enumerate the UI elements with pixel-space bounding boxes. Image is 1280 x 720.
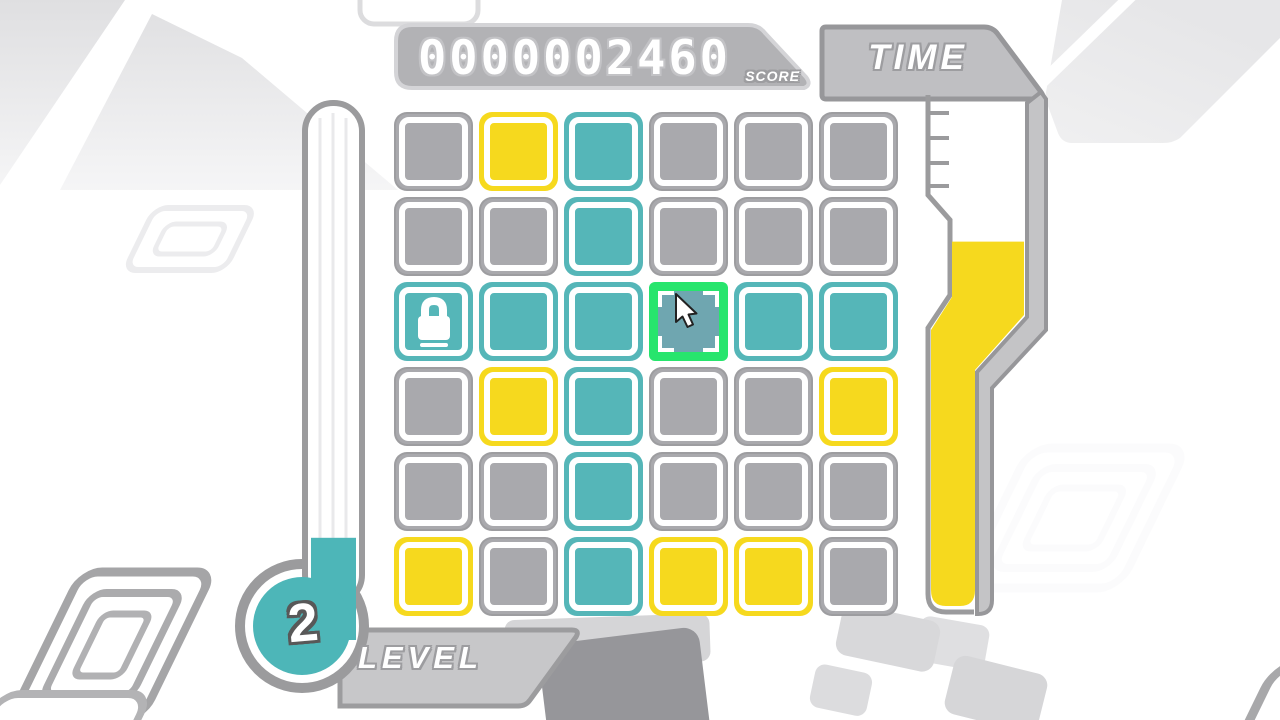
tile-r4-c4-gray[interactable] <box>734 452 813 531</box>
tile-r4-c0-gray[interactable] <box>394 452 473 531</box>
tile-r3-c1-yellow[interactable] <box>479 367 558 446</box>
bg-bottomright-corner <box>1215 662 1280 720</box>
tile-r3-c0-gray[interactable] <box>394 367 473 446</box>
tile-r4-c1-gray[interactable] <box>479 452 558 531</box>
score-banner <box>396 25 809 88</box>
selection-corner-tr <box>703 291 719 307</box>
tile-r3-c4-gray[interactable] <box>734 367 813 446</box>
tile-r1-c3-gray[interactable] <box>649 197 728 276</box>
time-gauge-ticks <box>928 113 949 186</box>
tile-r0-c4-gray[interactable] <box>734 112 813 191</box>
tile-r1-c2-teal[interactable] <box>564 197 643 276</box>
tile-r0-c0-gray[interactable] <box>394 112 473 191</box>
bg-bottomleft-corner <box>0 694 150 720</box>
game-grid <box>394 112 898 616</box>
bg-falling-blobs <box>504 602 1050 720</box>
level-gauge <box>240 103 364 688</box>
tile-r1-c5-gray[interactable] <box>819 197 898 276</box>
tile-r5-c5-gray[interactable] <box>819 537 898 616</box>
tile-r3-c3-gray[interactable] <box>649 367 728 446</box>
bg-midleft-ghost <box>125 208 255 270</box>
selection-corner-br <box>703 336 719 352</box>
selection-corner-bl <box>658 336 674 352</box>
lock-icon-wrap <box>394 282 473 361</box>
tile-r5-c2-teal[interactable] <box>564 537 643 616</box>
tile-r5-c3-yellow[interactable] <box>649 537 728 616</box>
tile-r0-c1-yellow[interactable] <box>479 112 558 191</box>
level-banner <box>340 630 577 706</box>
tile-r2-c0-teal-locked[interactable] <box>394 282 473 361</box>
bg-topright-slab <box>1045 0 1280 143</box>
tile-r2-c4-teal[interactable] <box>734 282 813 361</box>
tile-r3-c2-teal[interactable] <box>564 367 643 446</box>
tile-r5-c1-gray[interactable] <box>479 537 558 616</box>
tile-r2-c1-teal[interactable] <box>479 282 558 361</box>
bg-bottomright-motif <box>962 448 1187 588</box>
tile-r2-c2-teal[interactable] <box>564 282 643 361</box>
tile-r1-c0-gray[interactable] <box>394 197 473 276</box>
tile-r4-c3-gray[interactable] <box>649 452 728 531</box>
tile-r5-c4-yellow[interactable] <box>734 537 813 616</box>
tile-r2-c3-teal-selected[interactable] <box>649 282 728 361</box>
tile-r4-c2-teal[interactable] <box>564 452 643 531</box>
tile-r0-c5-gray[interactable] <box>819 112 898 191</box>
tile-r0-c3-gray[interactable] <box>649 112 728 191</box>
time-banner <box>822 27 1043 99</box>
bg-score-ghost <box>360 0 478 24</box>
tile-r2-c5-teal[interactable] <box>819 282 898 361</box>
selection-corner-tl <box>658 291 674 307</box>
tile-r1-c1-gray[interactable] <box>479 197 558 276</box>
lock-icon <box>411 296 457 348</box>
tile-r3-c5-yellow[interactable] <box>819 367 898 446</box>
tile-r1-c4-gray[interactable] <box>734 197 813 276</box>
tile-r0-c2-teal[interactable] <box>564 112 643 191</box>
tile-r4-c5-gray[interactable] <box>819 452 898 531</box>
level-bulb-fill <box>253 577 351 675</box>
tile-r5-c0-yellow[interactable] <box>394 537 473 616</box>
